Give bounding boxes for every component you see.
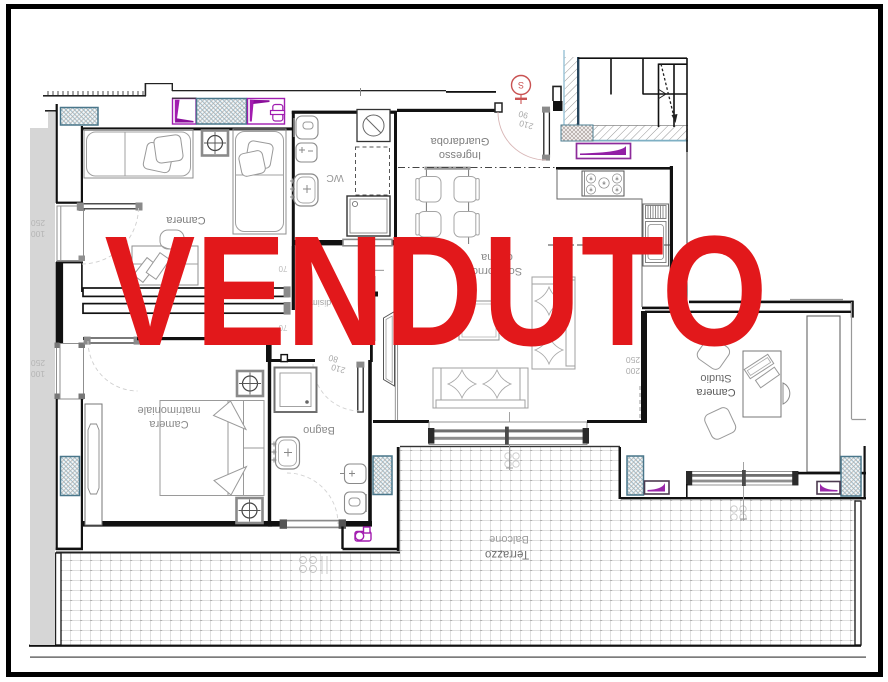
svg-text:100: 100 <box>31 369 45 379</box>
svg-text:S: S <box>518 80 524 90</box>
svg-text:250: 250 <box>31 218 45 228</box>
svg-text:Guardaroba: Guardaroba <box>430 135 490 147</box>
svg-text:Terrazzo: Terrazzo <box>485 548 529 560</box>
svg-text:Camera: Camera <box>149 418 189 430</box>
svg-text:Camera: Camera <box>696 386 736 398</box>
svg-text:WC: WC <box>326 172 344 184</box>
svg-text:100: 100 <box>31 229 45 239</box>
svg-text:250: 250 <box>31 358 45 368</box>
svg-text:Balcone: Balcone <box>489 533 529 545</box>
svg-text:VENDUTO: VENDUTO <box>105 204 768 379</box>
svg-text:Ingresso: Ingresso <box>439 149 481 161</box>
svg-text:Bagno: Bagno <box>303 424 335 436</box>
svg-text:matrimoniale: matrimoniale <box>138 404 201 416</box>
